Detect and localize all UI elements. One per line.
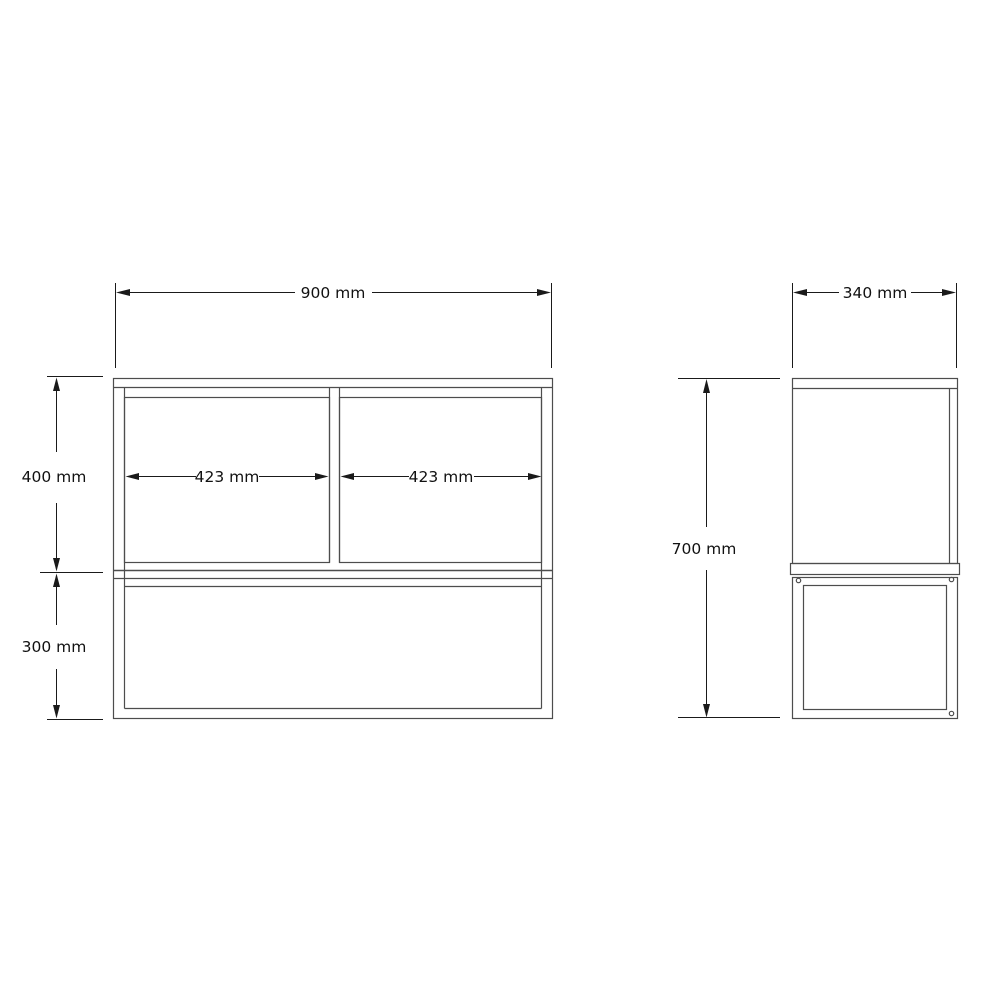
dimension-labels: 900 mm 400 mm 300 mm 423 mm 423 mm 340 m… <box>22 284 908 656</box>
left-compartment-width-label: 423 mm <box>195 468 260 486</box>
arrow-front-width-left <box>116 289 130 296</box>
front-view <box>114 379 553 719</box>
dimension-arrows <box>53 289 956 719</box>
front-outer-frame <box>114 379 553 719</box>
arrow-upper-height-top <box>53 378 60 392</box>
arrow-left-compartment-left <box>126 473 140 480</box>
technical-drawing-canvas: 900 mm 400 mm 300 mm 423 mm 423 mm 340 m… <box>0 0 1000 1000</box>
arrow-upper-height-bottom <box>53 558 60 572</box>
arrow-side-height-top <box>703 379 710 393</box>
side-lower-inner-panel <box>804 586 947 710</box>
arrow-right-compartment-right <box>528 473 542 480</box>
arrow-side-depth-right <box>942 289 956 296</box>
arrow-left-compartment-right <box>315 473 329 480</box>
side-upper-box <box>793 379 958 564</box>
side-shelf-band <box>791 564 960 575</box>
screw-hole-top-left <box>796 578 800 582</box>
right-compartment-width-label: 423 mm <box>409 468 474 486</box>
side-depth-label: 340 mm <box>843 284 908 302</box>
arrow-side-height-bottom <box>703 704 710 718</box>
front-lower-height-label: 300 mm <box>22 638 87 656</box>
front-width-label: 900 mm <box>301 284 366 302</box>
arrow-right-compartment-left <box>341 473 355 480</box>
arrow-side-depth-left <box>793 289 807 296</box>
side-height-label: 700 mm <box>672 540 737 558</box>
screw-hole-bottom-right <box>949 711 953 715</box>
dimension-lines <box>40 283 957 720</box>
front-upper-height-label: 400 mm <box>22 468 87 486</box>
cabinet-dimension-drawing: 900 mm 400 mm 300 mm 423 mm 423 mm 340 m… <box>0 0 1000 1000</box>
arrow-front-width-right <box>537 289 551 296</box>
arrow-lower-height-top <box>53 574 60 588</box>
side-lower-box <box>793 578 958 719</box>
side-view <box>791 379 960 719</box>
arrow-lower-height-bottom <box>53 705 60 719</box>
